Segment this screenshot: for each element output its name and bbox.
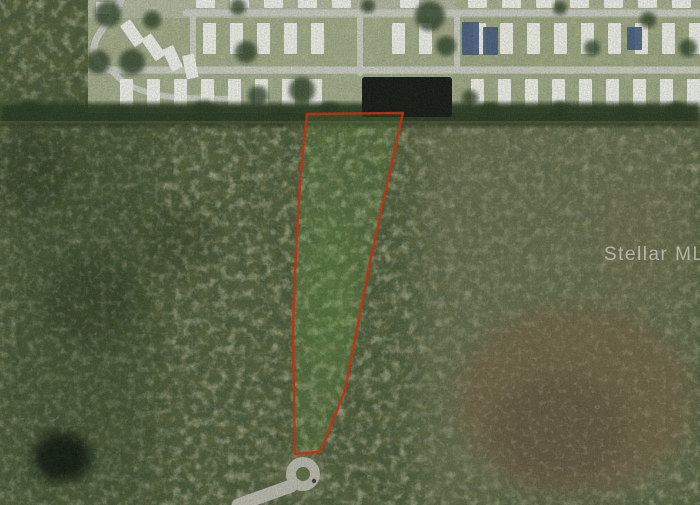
- aerial-photo: Stellar MLS: [0, 0, 700, 505]
- photo-grain-light: [0, 0, 700, 505]
- stellar-mls-watermark: Stellar MLS: [604, 244, 700, 265]
- aerial-photo-canvas: Stellar MLS: [0, 0, 700, 505]
